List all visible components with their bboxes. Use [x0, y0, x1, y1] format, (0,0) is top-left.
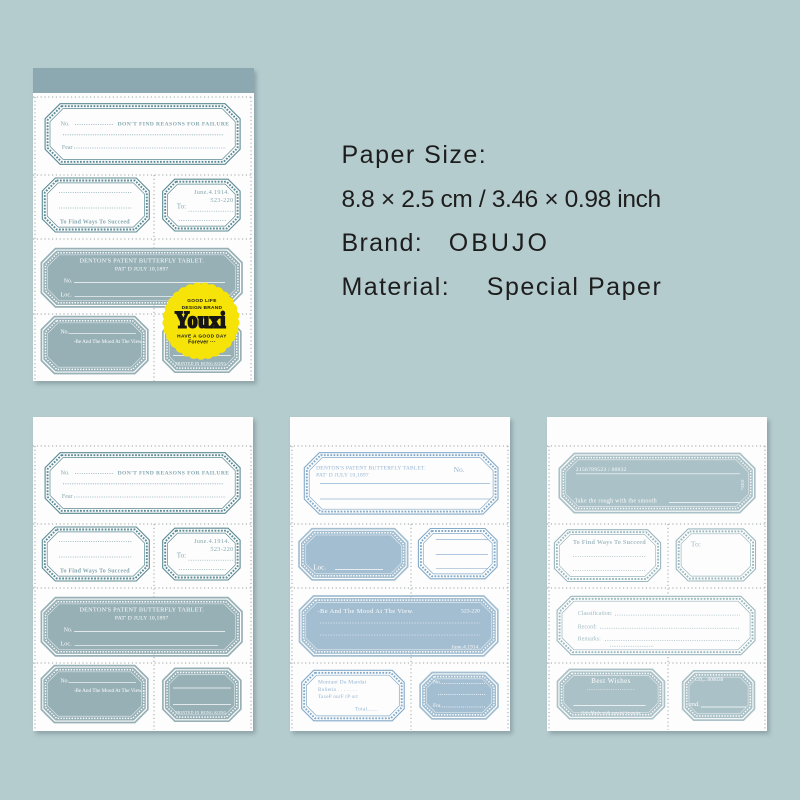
svg-text:Loc.: Loc.: [61, 291, 73, 298]
svg-text:Fear: Fear: [62, 145, 73, 151]
svg-text:Classification:: Classification:: [578, 610, 613, 617]
svg-text:Bulletin . . . . . . .: Bulletin . . . . . . .: [318, 687, 357, 693]
svg-text:No.: No.: [61, 470, 71, 477]
svg-text:Take the rough with the smooth: Take the rough with the smooth: [575, 499, 658, 505]
svg-text:June.4.1914.: June.4.1914.: [194, 538, 230, 545]
svg-text:and.: and.: [689, 701, 701, 708]
svg-text:To:: To:: [177, 202, 186, 210]
svg-text:To:: To:: [691, 539, 701, 548]
svg-text:PAT' D JULY 10,1897: PAT' D JULY 10,1897: [115, 615, 169, 621]
svg-text:PAT' D JULY 10,1897: PAT' D JULY 10,1897: [316, 472, 369, 478]
svg-text:Montant Du Mandat: Montant Du Mandat: [318, 680, 367, 686]
svg-text:TaxeP ourF rP ort: TaxeP ourF rP ort: [318, 694, 358, 700]
svg-text:To Find Ways To Succeed: To Find Ways To Succeed: [60, 220, 130, 226]
svg-text:COₓ...000038: COₓ...000038: [695, 677, 724, 683]
svg-text:-Be And The Mood At The View..: -Be And The Mood At The View...: [74, 688, 146, 694]
svg-text:No.: No.: [433, 680, 442, 686]
svg-text:DON'T FIND REASONS FOR FAILURE: DON'T FIND REASONS FOR FAILURE: [118, 470, 230, 476]
svg-text:Loc.: Loc.: [313, 564, 326, 572]
svg-text:Fear: Fear: [62, 494, 73, 500]
svg-text:-Be And The Mood At The View..: -Be And The Mood At The View...: [74, 339, 146, 345]
svg-text:No.: No.: [454, 465, 465, 474]
svg-text:523-220: 523-220: [461, 609, 480, 615]
svg-text:No.: No.: [61, 329, 70, 335]
svg-text:No.: No.: [64, 279, 73, 285]
svg-text:-Be And The Mood At The View.: -Be And The Mood At The View.: [318, 608, 415, 615]
svg-text:523-220: 523-220: [210, 546, 233, 553]
svg-text:DENTON'S PATENT BUTTERFLY TABL: DENTON'S PATENT BUTTERFLY TABLET.: [79, 257, 204, 264]
svg-text:2018.r.: 2018.r.: [740, 479, 745, 490]
svg-text:Total.......: Total.......: [355, 707, 379, 713]
svg-text:Loc.: Loc.: [61, 640, 73, 647]
svg-text:Record:: Record:: [578, 624, 597, 630]
svg-text:June.4.1914.: June.4.1914.: [194, 189, 230, 196]
svg-text:Best Wishes: Best Wishes: [591, 677, 631, 685]
svg-text:Fra: Fra: [433, 703, 441, 709]
svg-text:June.4.1914.: June.4.1914.: [451, 644, 480, 650]
svg-text:To:: To:: [177, 551, 186, 559]
svg-text:No.: No.: [61, 678, 70, 684]
svg-text:Forever ···: Forever ···: [188, 339, 216, 345]
svg-text:GOOD LIFE: GOOD LIFE: [187, 298, 217, 304]
svg-text:PAT' D JULY 10,1897: PAT' D JULY 10,1897: [115, 266, 169, 272]
svg-text:PRINTED IN HONG KONG: PRINTED IN HONG KONG: [175, 710, 226, 715]
svg-text:Remarks:: Remarks:: [578, 637, 601, 643]
svg-text:Gift-Made with special favorit: Gift-Made with special favorite: [581, 710, 640, 715]
svg-text:No.: No.: [61, 121, 71, 128]
svg-text:No.: No.: [64, 628, 73, 634]
svg-text:To Find Ways To Succeed: To Find Ways To Succeed: [60, 569, 130, 575]
svg-text:To Find Ways To Succeed: To Find Ways To Succeed: [573, 539, 646, 546]
svg-text:523-220: 523-220: [210, 197, 233, 204]
svg-text:DENTON'S PATENT BUTTERFLY TABL: DENTON'S PATENT BUTTERFLY TABLET.: [79, 606, 204, 613]
svg-text:DENTON'S PATENT BUTTERFLY TABL: DENTON'S PATENT BUTTERFLY TABLET.: [316, 465, 426, 471]
svg-text:DON'T FIND REASONS FOR FAILURE: DON'T FIND REASONS FOR FAILURE: [118, 121, 230, 127]
svg-text:2156789523 / 00032: 2156789523 / 00032: [576, 467, 627, 473]
svg-text:Youxi: Youxi: [175, 307, 226, 333]
